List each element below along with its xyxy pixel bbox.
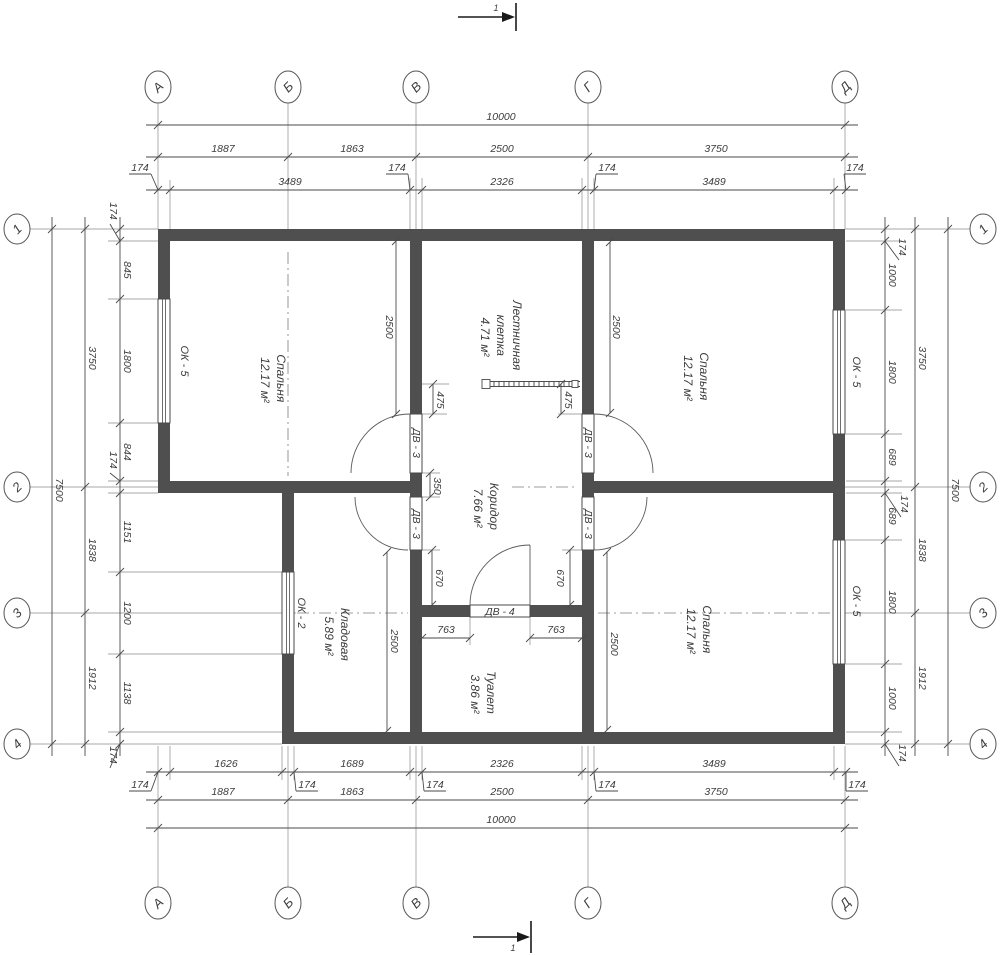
wall-G-middle (582, 473, 594, 497)
wall-storage-upper (282, 481, 294, 572)
dim-label: 174 (598, 779, 616, 791)
room-label-staircase: Лестничная клетка 4.71 м² (478, 299, 524, 373)
section-mark-bottom: 1 (473, 921, 531, 953)
room-label-bedroom-right-bottom: Спальня 12.17 м² (684, 605, 714, 656)
dim-label: 763 (547, 624, 565, 636)
wall-row2-right (582, 481, 845, 493)
dim-label: 174 (846, 162, 864, 174)
dim-label: 689 (886, 448, 898, 466)
axis-bubble-row-4-right: 4 (970, 729, 996, 759)
dim-label: 670 (554, 569, 566, 587)
dim-label: 350 (431, 477, 443, 495)
dim-label: 3750 (86, 346, 98, 370)
axis-bubble-col-G-bottom: Г (575, 887, 601, 919)
dim-label: 2500 (608, 631, 620, 656)
room-area: 4.71 м² (478, 318, 492, 358)
wall-right-lower (833, 664, 845, 744)
room-area: 12.17 м² (684, 608, 698, 655)
stair-railing (482, 380, 580, 389)
room-name: Спальня (697, 352, 711, 400)
dim-label: 1151 (121, 521, 133, 544)
dim-label: 1887 (211, 786, 236, 798)
wall-storage-lower (282, 654, 294, 744)
wall-B-lower (410, 550, 422, 744)
dim-label: 3489 (702, 176, 726, 188)
dim-label: 1800 (121, 349, 133, 373)
axis-bubble-col-A-bottom: А (145, 887, 171, 919)
axis-bubble-row-2-right: 2 (970, 472, 996, 502)
wall-left-upper (158, 229, 170, 299)
dim-label: 1838 (86, 538, 98, 562)
wall-B-middle (410, 473, 422, 497)
dim-label: 3750 (916, 346, 928, 370)
dim-label: 10000 (486, 814, 515, 826)
wall-G-upper (582, 229, 594, 414)
window-tag-ok5-right-bottom: ОК - 5 (850, 586, 862, 618)
dim-label: 1912 (86, 666, 98, 690)
dim-label: 174 (426, 779, 444, 791)
dimension-annotations: 1000018871863250037503489232634891741741… (48, 111, 961, 832)
dim-label: 3750 (704, 143, 728, 155)
axis-bubble-col-V-top: В (403, 71, 429, 103)
dim-label: 1863 (340, 143, 364, 155)
dim-label: 10000 (486, 111, 515, 123)
room-name: Лестничная (510, 299, 524, 371)
dim-label: 7500 (53, 478, 65, 502)
dim-label: 763 (437, 624, 455, 636)
wall-right-middle (833, 434, 845, 540)
door-tag-dv4: ДВ - 4 (484, 606, 515, 618)
door-tag-dv3-storage: ДВ - 3 (410, 508, 422, 539)
door-tag-dv3-left-bedroom: ДВ - 3 (410, 427, 422, 458)
room-area: 12.17 м² (258, 357, 272, 404)
floor-plan-drawing: 1000018871863250037503489232634891741741… (0, 0, 1000, 955)
dim-label: 1689 (340, 758, 364, 770)
room-area: 5.89 м² (322, 617, 336, 657)
dim-label: 1838 (916, 538, 928, 562)
room-label-storage: Кладовая 5.89 м² (322, 608, 352, 664)
door-arc-dv4 (470, 545, 530, 605)
dim-line (594, 772, 596, 791)
door-arc-right-bottom (594, 497, 647, 550)
door-arc-left-bedroom (351, 414, 410, 473)
axis-bubble-row-1-right: 1 (970, 214, 996, 244)
wall-right-upper (833, 229, 845, 310)
dim-label: 1863 (340, 786, 364, 798)
doors (351, 414, 653, 617)
axis-bubble-col-B-bottom: Б (275, 887, 301, 919)
axis-bubble-row-3-left: 3 (4, 598, 30, 628)
door-arc-right-top (594, 414, 653, 473)
dim-label: 174 (107, 202, 119, 220)
dim-label: 174 (131, 162, 149, 174)
dim-label: 1800 (886, 590, 898, 614)
room-name: Кладовая (338, 608, 352, 661)
dim-line (422, 772, 424, 791)
dim-line (151, 772, 158, 791)
door-arc-storage (355, 497, 408, 550)
axis-bubble-col-D-bottom: Д (832, 887, 858, 919)
wall-left-lower (158, 423, 170, 493)
axis-bubble-col-A-top: А (145, 71, 171, 103)
dim-label: 174 (898, 495, 910, 513)
room-label-corridor: Коридор 7.66 м² (471, 483, 501, 533)
dim-label: 174 (848, 779, 866, 791)
room-label-bedroom-left: Спальня 12.17 м² (258, 354, 288, 405)
dim-label: 174 (131, 779, 149, 791)
wall-G-lower (582, 550, 594, 744)
dim-label: 845 (121, 261, 133, 279)
dim-label: 174 (298, 779, 316, 791)
dim-line (110, 224, 120, 241)
section-mark-top: 1 (458, 3, 516, 31)
dim-label: 2326 (489, 176, 514, 188)
dim-label: 174 (896, 744, 908, 762)
room-area: 3.86 м² (468, 675, 482, 715)
axis-bubble-col-D-top: Д (832, 71, 858, 103)
room-name: клетка (494, 315, 508, 357)
dim-label: 1000 (886, 263, 898, 287)
axis-bubble-col-B-top: Б (275, 71, 301, 103)
dim-label: 2500 (610, 314, 622, 339)
door-tag-dv3-right-bottom: ДВ - 3 (582, 508, 594, 539)
dim-label: 475 (562, 391, 574, 409)
axis-bubble-col-G-top: Г (575, 71, 601, 103)
dim-label: 844 (121, 443, 133, 461)
dim-label: 2326 (489, 758, 514, 770)
dim-label: 174 (107, 451, 119, 469)
dim-label: 3489 (702, 758, 726, 770)
dim-label: 1800 (886, 360, 898, 384)
window-tag-ok5-right-top: ОК - 5 (850, 357, 862, 389)
axis-bubble-col-V-bottom: В (403, 887, 429, 919)
axis-bubble-row-3-right: 3 (970, 598, 996, 628)
floor-plan-canvas: 1000018871863250037503489232634891741741… (0, 0, 1000, 955)
section-label: 1 (493, 3, 498, 13)
room-label-bedroom-right-top: Спальня 12.17 м² (681, 352, 711, 403)
wall-bottom (282, 732, 845, 744)
dim-label: 2500 (489, 143, 514, 155)
dim-label: 670 (433, 569, 445, 587)
axis-bubble-row-2-left: 2 (4, 472, 30, 502)
section-arrow-icon (517, 932, 530, 942)
dim-label: 1912 (916, 666, 928, 690)
dim-label: 1626 (214, 758, 238, 770)
dim-label: 174 (896, 238, 908, 256)
dim-label: 174 (388, 162, 406, 174)
window-ok5-left (158, 299, 170, 423)
room-label-toilet: Туалет 3.86 м² (468, 671, 498, 717)
room-name: Туалет (484, 671, 498, 714)
room-area: 12.17 м² (681, 355, 695, 402)
axis-centerlines (288, 252, 831, 613)
door-tag-dv3-right-top: ДВ - 3 (582, 427, 594, 458)
dim-label: 1138 (121, 682, 133, 705)
dim-label: 7500 (949, 478, 961, 502)
dim-label: 3489 (278, 176, 302, 188)
wall-B-upper (410, 229, 422, 414)
room-name: Спальня (700, 605, 714, 653)
room-area: 7.66 м² (471, 489, 485, 529)
dim-label: 2500 (489, 786, 514, 798)
window-ok2 (282, 572, 294, 654)
room-name: Коридор (487, 483, 501, 530)
dim-label: 3750 (704, 786, 728, 798)
axis-bubble-row-4-left: 4 (4, 729, 30, 759)
room-name: Спальня (274, 354, 288, 402)
dim-label: 174 (598, 162, 616, 174)
dim-label: 1200 (121, 601, 133, 625)
dim-label: 2500 (388, 628, 400, 653)
dim-line (294, 772, 296, 791)
dim-label: 1000 (886, 686, 898, 710)
dim-label: 2500 (383, 314, 395, 339)
window-tag-ok5-left: ОК - 5 (178, 346, 190, 378)
dim-line (151, 174, 158, 190)
dim-line (110, 473, 120, 481)
dim-label: 1887 (211, 143, 236, 155)
window-ok5-right-bottom (833, 540, 845, 664)
wall-top (158, 229, 845, 241)
dim-label: 475 (434, 391, 446, 409)
window-tag-ok2: ОК - 2 (295, 598, 307, 629)
section-arrow-icon (502, 12, 515, 22)
section-label: 1 (510, 943, 515, 953)
window-ok5-right-top (833, 310, 845, 434)
axis-bubble-row-1-left: 1 (4, 214, 30, 244)
